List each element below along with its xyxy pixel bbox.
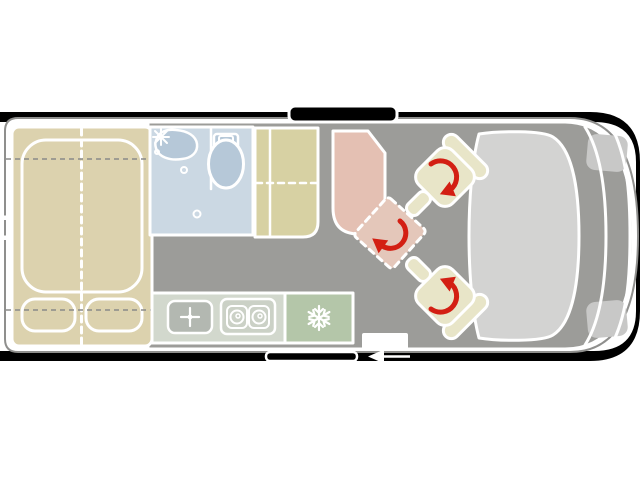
wardrobe-bench	[255, 128, 318, 237]
bathroom	[150, 127, 253, 235]
rear-bed	[6, 127, 152, 346]
rear-door-gap-top	[3, 216, 9, 221]
door-sill	[266, 352, 357, 361]
rear-door-gap-bottom	[3, 236, 9, 241]
cab-front	[469, 127, 630, 345]
bench-body	[255, 128, 318, 237]
bed-base	[12, 127, 152, 346]
faucet-icon	[153, 129, 169, 145]
skylight	[289, 106, 397, 122]
kitchen	[152, 293, 353, 343]
floorplan-canvas	[0, 0, 640, 480]
toilet-bowl	[209, 140, 244, 188]
entry-step	[362, 333, 408, 350]
